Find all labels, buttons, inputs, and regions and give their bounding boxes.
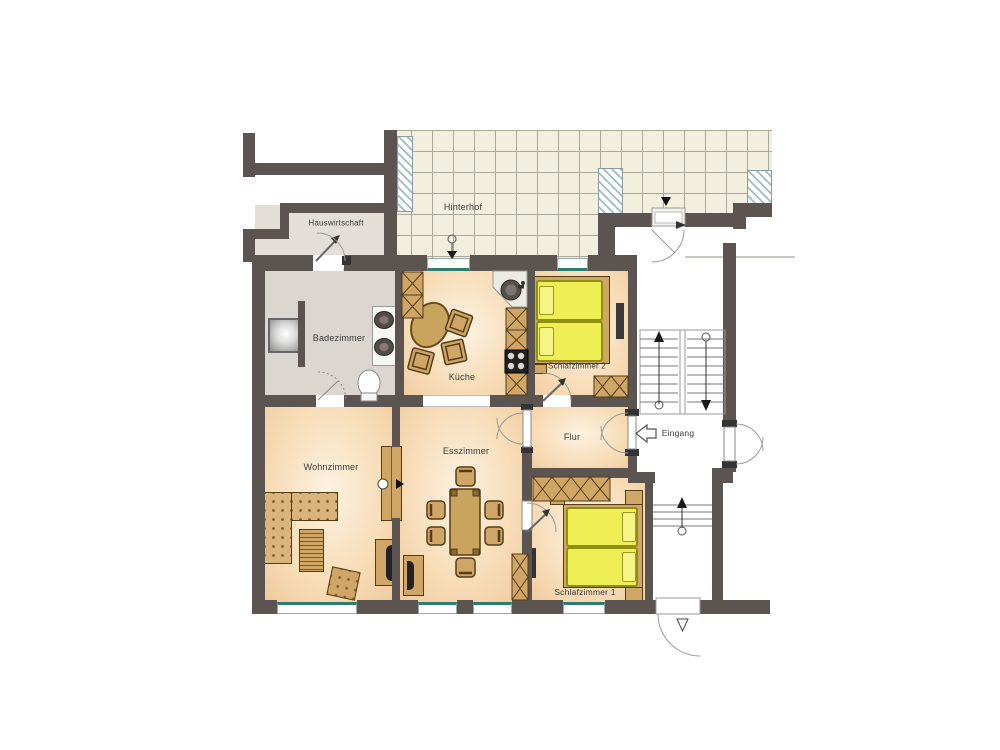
wall	[344, 255, 427, 271]
pillow	[539, 327, 554, 356]
wall	[490, 395, 543, 407]
room-wohnzimmer-label: Wohnzimmer	[304, 462, 359, 472]
sofa-vertical	[264, 492, 292, 564]
wall	[252, 600, 277, 614]
door-opening	[316, 395, 344, 407]
property-line	[685, 256, 795, 258]
pillow	[622, 512, 636, 542]
wall	[395, 268, 404, 400]
wall	[628, 271, 637, 415]
floor-plan: Hauswirtschaft Hinterhof Badezimmer Küch…	[0, 0, 1000, 750]
wall	[733, 203, 746, 229]
wall	[700, 600, 770, 614]
wall	[252, 262, 265, 614]
wall	[685, 213, 737, 227]
window	[473, 602, 512, 614]
room-esszimmer-label: Esszimmer	[443, 446, 489, 456]
window	[277, 602, 357, 614]
bathroom-partition	[298, 301, 305, 367]
wall	[512, 600, 563, 614]
window	[563, 602, 605, 614]
staircase-main	[640, 330, 725, 414]
passage-opening	[423, 395, 490, 407]
window	[427, 258, 470, 271]
hatched-pillar	[747, 170, 772, 204]
tiled-stove	[381, 446, 402, 521]
door-opening	[543, 395, 571, 407]
wall	[384, 130, 397, 263]
room-kueche-label: Küche	[449, 372, 476, 382]
wall	[457, 600, 473, 614]
wall	[525, 268, 535, 400]
wall	[280, 203, 390, 213]
pillow	[539, 286, 554, 315]
wall	[746, 203, 772, 217]
room-badezimmer-label: Badezimmer	[313, 333, 366, 343]
wall	[252, 395, 316, 407]
coffee-table	[326, 566, 360, 600]
wall	[598, 227, 615, 255]
door-opening	[723, 427, 736, 462]
room-hinterhof-label: Hinterhof	[444, 202, 482, 212]
nightstand	[550, 492, 565, 505]
nightstand	[533, 364, 547, 374]
wall	[723, 243, 736, 427]
wall	[645, 472, 653, 602]
wall	[522, 530, 532, 602]
room-hauswirtschaft-label: Hauswirtschaft	[308, 219, 363, 228]
wall	[723, 462, 736, 472]
wall	[344, 395, 423, 407]
room-flur-label: Flur	[564, 432, 580, 442]
wall	[243, 163, 390, 175]
staircase-rear	[653, 497, 712, 535]
window	[418, 602, 457, 614]
wall	[712, 483, 723, 602]
wall	[605, 600, 656, 614]
hatched-pillar	[397, 136, 413, 212]
wall	[532, 468, 630, 478]
shower	[268, 318, 301, 353]
radiator	[616, 303, 624, 339]
window	[557, 258, 588, 271]
wall	[598, 213, 652, 227]
pillow	[622, 552, 636, 582]
wall	[588, 255, 637, 271]
tv	[407, 561, 414, 590]
wall	[392, 407, 400, 447]
hatched-pillar	[598, 168, 623, 215]
entrance-arrow-icon	[636, 425, 656, 442]
rear-exit-door	[656, 598, 700, 656]
side-table	[299, 529, 324, 572]
wall	[470, 255, 557, 271]
door-opening	[628, 415, 637, 450]
wall	[628, 450, 637, 474]
room-eingang-label: Eingang	[662, 428, 695, 438]
sink-counter	[372, 306, 397, 366]
room-schlafzimmer-2-label: Schlafzimmer 2	[548, 362, 606, 371]
wall	[357, 600, 418, 614]
door-opening	[313, 255, 343, 271]
wall	[522, 446, 532, 502]
wall	[392, 518, 400, 602]
room-schlafzimmer-1-label: Schlafzimmer 1	[554, 587, 615, 597]
